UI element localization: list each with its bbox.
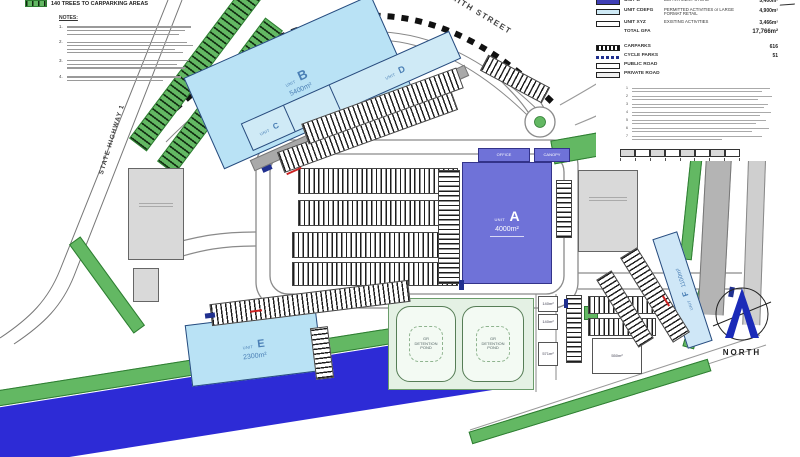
- legend-label: TOTAL GFA: [624, 29, 664, 34]
- unit-z-area: 571m²: [539, 343, 557, 365]
- unit-cdefg-swatch: [596, 9, 620, 15]
- legend-row-public-road: PUBLIC ROAD: [596, 62, 796, 69]
- unit-d-letter: D: [396, 63, 406, 75]
- legend-label: CYCLE PARKS: [624, 53, 664, 58]
- unit-x-area: 140m²: [539, 297, 557, 311]
- unit-b-prefix: UNIT: [285, 79, 297, 88]
- parking-row: [292, 262, 458, 286]
- existing-building-west-small: [133, 268, 159, 302]
- spacer: [596, 30, 620, 36]
- legend-desc: EXISTING ACTIVITIES: [664, 20, 740, 25]
- cycle-parks-marker: [459, 280, 464, 290]
- unit-y-area: 140m²: [539, 315, 557, 329]
- notes-block: 140 TREES TO CARPARKING AREAS NOTES: 1. …: [25, 0, 215, 84]
- unit-w-area: 550m²: [593, 339, 641, 373]
- parking-row: [298, 200, 458, 226]
- canopy-label: CANOPY: [535, 149, 569, 161]
- legend-desc: DEPARTMENT STORE: [664, 0, 740, 3]
- parking-row: [566, 295, 582, 363]
- north-arrow: NORTH: [706, 282, 778, 360]
- legend-row-private-road: PRIVATE ROAD: [596, 71, 796, 78]
- legend-value: 616: [740, 44, 778, 50]
- legend-label: UNIT CDEFG: [624, 8, 664, 13]
- unit-a-letter: A: [509, 208, 519, 224]
- detention-pond-1: GR DETENTION POND: [396, 306, 456, 382]
- legend-value: 5,400m²: [740, 0, 778, 4]
- public-road-swatch: [596, 63, 620, 69]
- legend-row-unit-b: UNIT B DEPARTMENT STORE 5,400m²: [596, 0, 796, 5]
- note-number: 3.: [59, 58, 67, 71]
- unit-w-building: 550m²: [592, 338, 642, 374]
- legend-value: 51: [740, 53, 778, 59]
- unit-b-letter: B: [295, 66, 310, 84]
- legend-value: 4,900m²: [740, 8, 778, 14]
- unit-f-prefix: UNIT: [686, 300, 694, 312]
- legend-notes: 1 2 3 4 5 6 7: [626, 86, 776, 142]
- legend-label: UNIT B: [624, 0, 664, 3]
- unit-x-building: 140m²: [538, 296, 558, 312]
- unit-c-prefix: UNIT: [259, 127, 271, 136]
- legend-row-total: TOTAL GFA 17,766m²: [596, 29, 796, 36]
- unit-d-prefix: UNIT: [384, 71, 396, 80]
- legend-value: 3,466m²: [740, 20, 778, 26]
- north-label: NORTH: [723, 348, 761, 357]
- unit-e-prefix: UNIT: [242, 344, 253, 350]
- north-arrow-glyph: [725, 288, 759, 338]
- unit-a-office: OFFICE: [478, 148, 530, 162]
- note-number: 1.: [59, 24, 67, 37]
- unit-e-area: 2300m²: [243, 351, 267, 361]
- carparks-swatch: [596, 45, 620, 51]
- scale-ticks: [620, 158, 740, 161]
- unit-f-letter: F: [680, 290, 690, 297]
- unit-e-letter: E: [257, 338, 266, 351]
- parking-row: [292, 232, 458, 258]
- legend-value: 17,766m²: [740, 29, 778, 35]
- legend-row-cycle-parks: CYCLE PARKS 51: [596, 53, 796, 59]
- notes-heading: NOTES:: [59, 15, 215, 21]
- unit-a-subtext: [490, 236, 524, 237]
- legend-row-carparks: CARPARKS 616: [596, 44, 796, 51]
- unit-a-building: UNIT A 4000m²: [462, 162, 552, 284]
- unit-a-area: 4000m²: [495, 226, 519, 233]
- legend-label: PUBLIC ROAD: [624, 62, 664, 67]
- unit-a-prefix: UNIT: [494, 217, 505, 222]
- unit-f-area: 1100m²: [675, 267, 687, 288]
- note-number: 2.: [59, 39, 67, 56]
- unit-y-building: 140m²: [538, 314, 558, 330]
- pond1-line3: POND: [414, 346, 437, 351]
- pond2-line3: POND: [481, 346, 504, 351]
- cycle-parks-marker: [564, 299, 568, 308]
- existing-building-east: [578, 170, 638, 252]
- unit-xyz-swatch: [596, 21, 620, 27]
- legend-row-unit-cdefg: UNIT CDEFG PERMITTED ACTIVITIES or LARGE…: [596, 8, 796, 18]
- tree-swatch: [25, 0, 47, 7]
- unit-a-canopy: CANOPY: [534, 148, 570, 162]
- parking-row: [556, 180, 572, 238]
- detention-pond-2: GR DETENTION POND: [462, 306, 524, 382]
- private-road-swatch: [596, 72, 620, 78]
- legend-label: UNIT XYZ: [624, 20, 664, 25]
- existing-building-west: [128, 168, 184, 260]
- unit-c-letter: C: [271, 120, 280, 131]
- parking-row: [298, 168, 458, 194]
- scale-bar: [620, 149, 796, 161]
- site-plan: UNIT B 5400m² UNIT C UNIT D OFFICE CANOP…: [0, 0, 800, 457]
- cycle-parks-swatch: [596, 56, 620, 59]
- note-number: 4.: [59, 74, 67, 84]
- parking-row: [438, 170, 460, 284]
- legend: UNIT B DEPARTMENT STORE 5,400m² UNIT CDE…: [596, 0, 796, 161]
- unit-z-building: 571m²: [538, 342, 558, 366]
- legend-row-unit-xyz: UNIT XYZ EXISTING ACTIVITIES 3,466m²: [596, 20, 796, 27]
- legend-desc: PERMITTED ACTIVITIES or LARGE FORMAT RET…: [664, 8, 740, 18]
- unit-b-swatch: [596, 0, 620, 5]
- handwritten-annotation: [780, 0, 798, 6]
- tree-note: 140 TREES TO CARPARKING AREAS: [51, 1, 148, 7]
- legend-label: CARPARKS: [624, 44, 664, 49]
- unit-a-label: UNIT A 4000m²: [463, 163, 551, 283]
- office-label: OFFICE: [479, 149, 529, 161]
- legend-label: PRIVATE ROAD: [624, 71, 664, 76]
